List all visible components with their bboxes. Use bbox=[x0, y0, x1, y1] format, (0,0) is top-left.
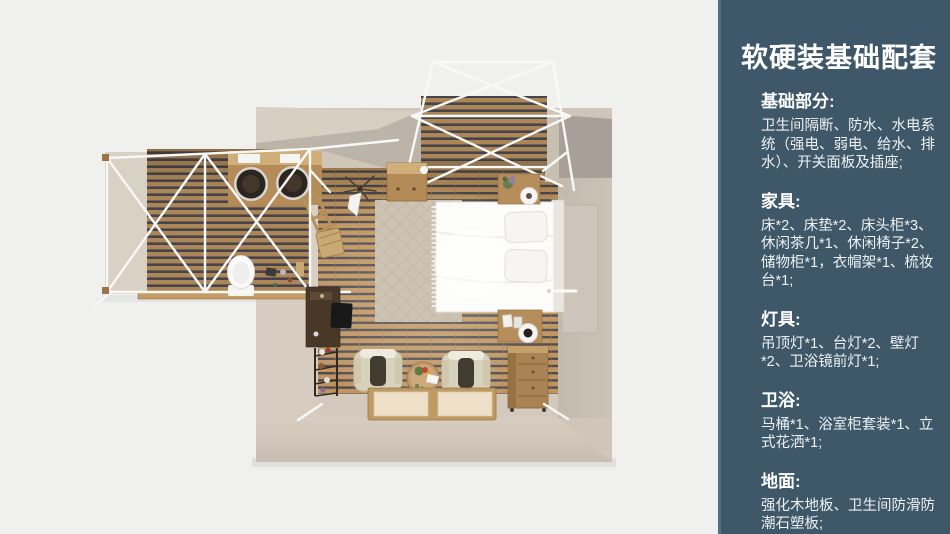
toilet-icon bbox=[228, 256, 255, 297]
section-furniture-heading: 家具: bbox=[761, 191, 936, 213]
section-flooring: 地面: 强化木地板、卫生间防滑防潮石塑板; bbox=[761, 471, 936, 534]
section-lighting-body: 吊顶灯*1、台灯*2、壁灯*2、卫浴镜前灯*1; bbox=[761, 335, 936, 372]
floor-mats-icon bbox=[368, 388, 496, 420]
nightstand-bottom bbox=[498, 310, 542, 343]
wood-basket-icon bbox=[316, 228, 345, 258]
nightstand-top bbox=[498, 174, 540, 205]
storage-cabinet-icon bbox=[387, 163, 428, 201]
section-furniture-body: 床*2、床垫*2、床头柜*3、休闲茶几*1、休闲椅子*2、储物柜*1，衣帽架*1… bbox=[761, 217, 936, 291]
lounge-chair-icon bbox=[354, 349, 402, 391]
slide: 软硬装基础配套 基础部分: 卫生间隔断、防水、水电系统（强电、弱电、给水、排水）… bbox=[0, 0, 950, 534]
wall-lamp-icon bbox=[547, 289, 576, 293]
storage-dresser-icon bbox=[508, 346, 548, 412]
section-furniture: 家具: 床*2、床垫*2、床头柜*3、休闲茶几*1、休闲椅子*2、储物柜*1，衣… bbox=[761, 191, 936, 291]
section-basics: 基础部分: 卫生间隔断、防水、水电系统（强电、弱电、给水、排水）、开关面板及插座… bbox=[761, 91, 936, 173]
section-lighting: 灯具: 吊顶灯*1、台灯*2、壁灯*2、卫浴镜前灯*1; bbox=[761, 309, 936, 372]
bed bbox=[434, 200, 564, 312]
section-basics-heading: 基础部分: bbox=[761, 91, 936, 113]
section-bathroom-heading: 卫浴: bbox=[761, 390, 936, 412]
section-basics-body: 卫生间隔断、防水、水电系统（强电、弱电、给水、排水）、开关面板及插座; bbox=[761, 117, 936, 173]
section-bathroom: 卫浴: 马桶*1、浴室柜套装*1、立式花洒*1; bbox=[761, 390, 936, 453]
spec-sections: 基础部分: 卫生间隔断、防水、水电系统（强电、弱电、给水、排水）、开关面板及插座… bbox=[721, 91, 950, 534]
lounge-chair-icon bbox=[442, 351, 490, 393]
floorplan-render bbox=[0, 0, 718, 534]
section-bathroom-body: 马桶*1、浴室柜套装*1、立式花洒*1; bbox=[761, 416, 936, 453]
section-flooring-heading: 地面: bbox=[761, 471, 936, 493]
section-lighting-heading: 灯具: bbox=[761, 309, 936, 331]
pillow-icon bbox=[504, 249, 547, 282]
panel-title: 软硬装基础配套 bbox=[721, 0, 950, 76]
pillow-icon bbox=[504, 211, 547, 242]
section-flooring-body: 强化木地板、卫生间防滑防潮石塑板; bbox=[761, 497, 936, 534]
info-panel: 软硬装基础配套 基础部分: 卫生间隔断、防水、水电系统（强电、弱电、给水、排水）… bbox=[718, 0, 950, 534]
